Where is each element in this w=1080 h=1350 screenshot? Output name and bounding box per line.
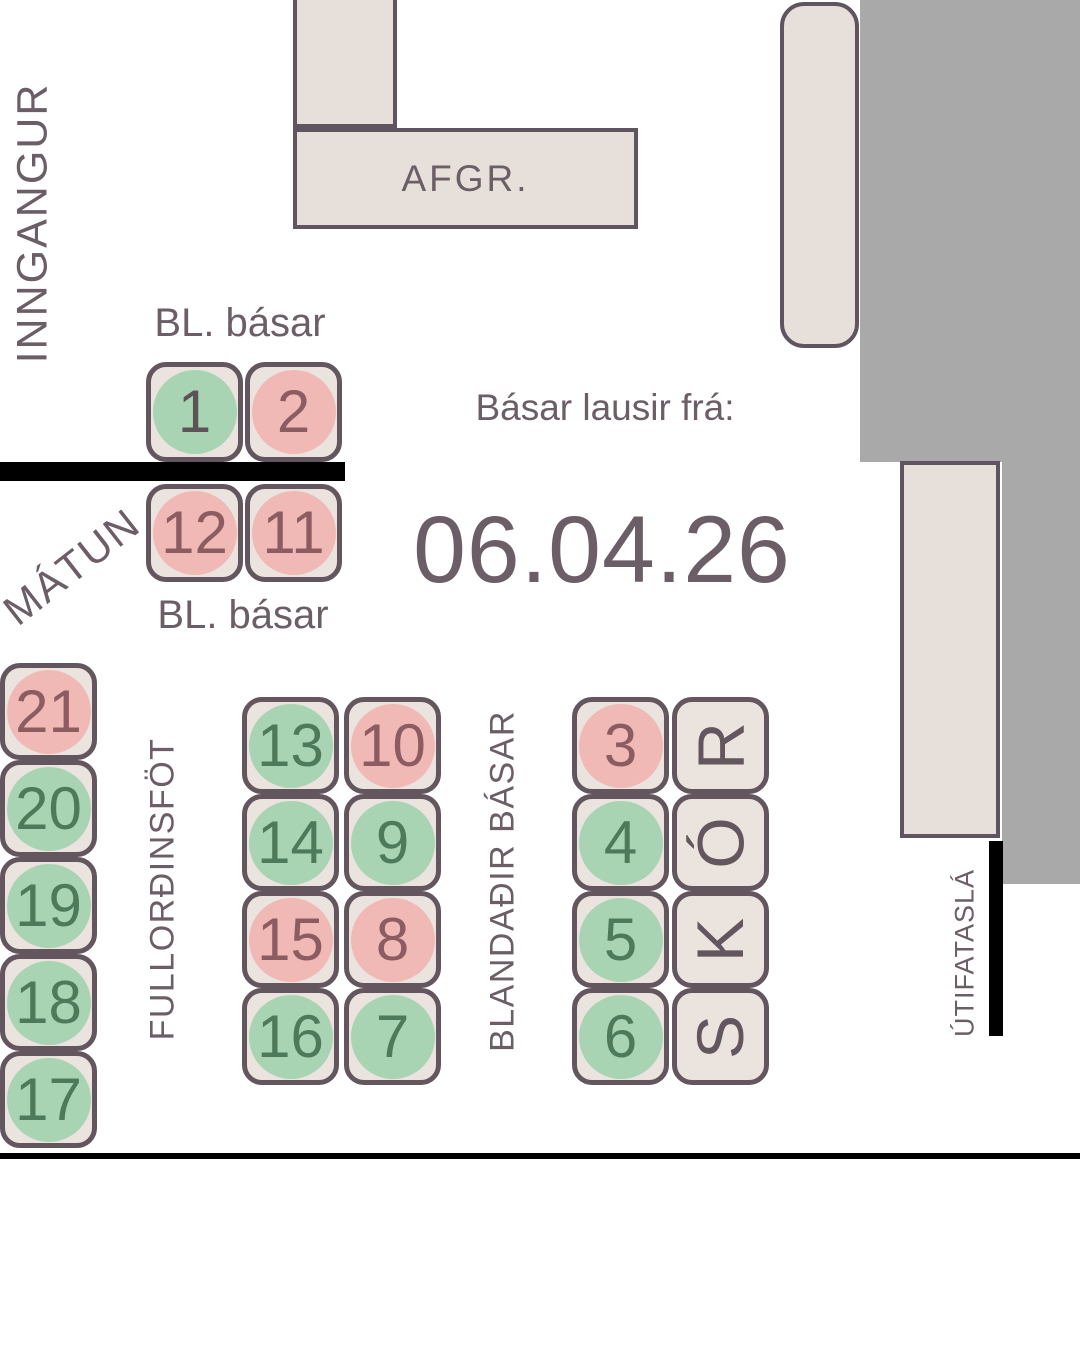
booth-group-center-grid: 1310149158167 — [242, 697, 441, 1085]
booth-12: 12 — [146, 484, 243, 582]
booth-9: 9 — [344, 794, 441, 891]
available-date: 06.04.26 — [392, 496, 812, 605]
shoes-letter-tile: R — [672, 697, 769, 794]
shoes-letter: R — [687, 722, 753, 770]
booth-number: 16 — [257, 1007, 324, 1067]
booth-number: 15 — [257, 910, 324, 970]
mixed-booths-label: BLANDAÐIR BÁSAR — [484, 710, 523, 1052]
bl-basar-bottom-label: BL. básar — [133, 593, 353, 638]
fitting-room-divider-bar — [0, 462, 345, 481]
booth-18: 18 — [0, 954, 97, 1051]
booth-1: 1 — [146, 362, 243, 462]
booth-number: 13 — [257, 716, 324, 776]
outdoor-rack-label: ÚTIFATASLÁ — [950, 869, 981, 1037]
booth-number: 9 — [376, 813, 409, 873]
booth-number: 19 — [15, 876, 82, 936]
entrance-label: INNGANGUR — [9, 83, 58, 364]
shoes-letter-tile: Ó — [672, 794, 769, 891]
gray-wall-lower — [1002, 300, 1080, 884]
shoes-letter: S — [688, 1014, 754, 1058]
booth-16: 16 — [242, 988, 339, 1085]
booth-2: 2 — [245, 362, 342, 462]
booth-14: 14 — [242, 794, 339, 891]
booth-group-bl-bottom: 1211 — [146, 484, 342, 582]
booth-3: 3 — [572, 697, 669, 794]
booth-group-right-column: 3456 — [572, 697, 669, 1085]
booth-21: 21 — [0, 663, 97, 760]
booth-number: 18 — [15, 973, 82, 1033]
booth-number: 17 — [15, 1070, 82, 1130]
booth-group-bl-top: 12 — [146, 362, 342, 462]
booth-4: 4 — [572, 794, 669, 891]
register-counter: AFGR. — [293, 128, 638, 229]
booth-number: 12 — [161, 503, 228, 563]
booth-number: 4 — [604, 813, 637, 873]
booth-10: 10 — [344, 697, 441, 794]
register-label: AFGR. — [401, 158, 529, 200]
booth-number: 5 — [604, 910, 637, 970]
booth-number: 8 — [376, 910, 409, 970]
shoes-letter-column: RÓKS — [672, 697, 769, 1085]
booth-number: 10 — [359, 716, 426, 776]
shoes-letter-tile: S — [672, 988, 769, 1085]
booth-number: 6 — [604, 1007, 637, 1067]
booth-group-left-column: 2120191817 — [0, 663, 97, 1148]
booth-6: 6 — [572, 988, 669, 1085]
shoes-letter: Ó — [688, 817, 754, 868]
booth-20: 20 — [0, 760, 97, 857]
booth-8: 8 — [344, 891, 441, 988]
shoes-letter: K — [688, 917, 754, 961]
available-from-label: Básar lausir frá: — [430, 387, 780, 429]
adult-clothing-label: FULLORÐINSFÖT — [144, 738, 183, 1041]
booth-number: 11 — [262, 503, 324, 563]
booth-number: 21 — [15, 682, 82, 742]
booth-19: 19 — [0, 857, 97, 954]
fitting-room-label: MÁTUN — [0, 499, 150, 635]
shoes-letter-tile: K — [672, 891, 769, 988]
bl-basar-top-label: BL. básar — [130, 301, 350, 346]
outdoor-rack-bar — [989, 841, 1003, 1036]
booth-number: 3 — [604, 716, 637, 776]
pillar-structure — [780, 2, 859, 348]
booth-11: 11 — [245, 484, 342, 582]
booth-number: 2 — [277, 382, 310, 442]
booth-number: 20 — [15, 779, 82, 839]
booth-13: 13 — [242, 697, 339, 794]
bottom-wall-line — [0, 1153, 1080, 1159]
booth-number: 7 — [376, 1007, 409, 1067]
booth-17: 17 — [0, 1051, 97, 1148]
outdoor-rack-wall — [900, 461, 1000, 838]
booth-7: 7 — [344, 988, 441, 1085]
booth-number: 14 — [257, 813, 324, 873]
floor-plan: AFGR. INNGANGUR MÁTUN BL. básar BL. bása… — [0, 0, 1080, 1350]
register-counter-vertical — [293, 0, 397, 128]
booth-5: 5 — [572, 891, 669, 988]
booth-number: 1 — [178, 382, 211, 442]
booth-15: 15 — [242, 891, 339, 988]
